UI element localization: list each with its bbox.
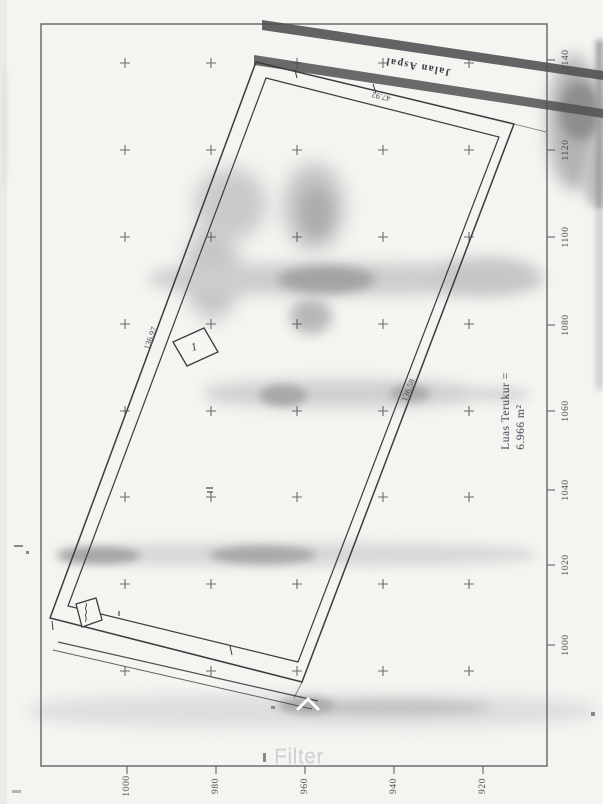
grid-easting-label: 920 — [478, 778, 488, 794]
grid-cross — [464, 406, 474, 416]
grid-cross — [378, 232, 388, 242]
grid-cross — [464, 579, 474, 589]
grid-cross — [292, 319, 302, 329]
frame-ticks — [127, 60, 555, 774]
grid-cross — [206, 319, 216, 329]
grid-cross — [378, 406, 388, 416]
grid-cross — [464, 666, 474, 676]
grid-cross — [378, 492, 388, 502]
grid-cross — [292, 579, 302, 589]
grid-cross — [120, 145, 130, 155]
structure-box-2 — [76, 598, 102, 627]
grid-cross — [292, 145, 302, 155]
area-label-line1: Luas Terukur = — [499, 372, 514, 450]
area-label-line2: 6.966 m² — [514, 372, 529, 450]
grid-northing-label: 1120 — [561, 139, 571, 160]
grid-northing-label: 1060 — [561, 400, 571, 421]
grid-cross — [120, 492, 130, 502]
grid-easting-label: 960 — [300, 778, 310, 794]
grid-easting-label: 940 — [389, 778, 399, 794]
grid-cross — [206, 666, 216, 676]
grid-cross — [378, 579, 388, 589]
grid-cross — [464, 319, 474, 329]
measure-tick — [230, 646, 232, 655]
grid-cross — [206, 579, 216, 589]
grid-cross — [206, 145, 216, 155]
grid-cross — [378, 145, 388, 155]
filter-button[interactable]: Filter — [274, 745, 324, 769]
grid-northing-label: 1000 — [561, 634, 571, 655]
grid-easting-label: 980 — [211, 778, 221, 794]
grid-cross — [206, 406, 216, 416]
scanned-survey-map-page: Jalan Aspal Luas Terukur = 6.966 m² 136.… — [0, 0, 603, 804]
measure-tick — [52, 621, 53, 630]
grid-cross — [120, 232, 130, 242]
grid-northing-label: 1140 — [561, 49, 571, 70]
chevron-up-icon[interactable] — [293, 694, 325, 714]
boundary-extension-line — [514, 124, 546, 132]
grid-cross — [206, 492, 216, 502]
grid-easting-label: 1000 — [122, 775, 132, 796]
grid-cross — [464, 145, 474, 155]
grid-cross — [292, 666, 302, 676]
grid-cross — [464, 492, 474, 502]
grid-cross — [120, 58, 130, 68]
area-label: Luas Terukur = 6.966 m² — [499, 372, 529, 450]
parcel-boundary-outer — [50, 62, 514, 682]
grid-cross — [378, 666, 388, 676]
grid-cross — [292, 492, 302, 502]
grid-northing-label: 1080 — [561, 314, 571, 335]
grid-cross — [292, 406, 302, 416]
adjacent-boundary-line — [53, 650, 312, 709]
grid-northing-label: 1020 — [561, 554, 571, 575]
grid-cross — [120, 319, 130, 329]
parcel-boundary-inner — [68, 78, 499, 662]
grid-cross — [206, 58, 216, 68]
grid-northing-label: 1100 — [561, 226, 571, 247]
grid-cross — [120, 579, 130, 589]
grid-cross — [378, 319, 388, 329]
map-frame — [41, 24, 547, 766]
grid-cross — [292, 232, 302, 242]
adjacent-boundary-line — [58, 642, 318, 701]
grid-northing-label: 1040 — [561, 479, 571, 500]
